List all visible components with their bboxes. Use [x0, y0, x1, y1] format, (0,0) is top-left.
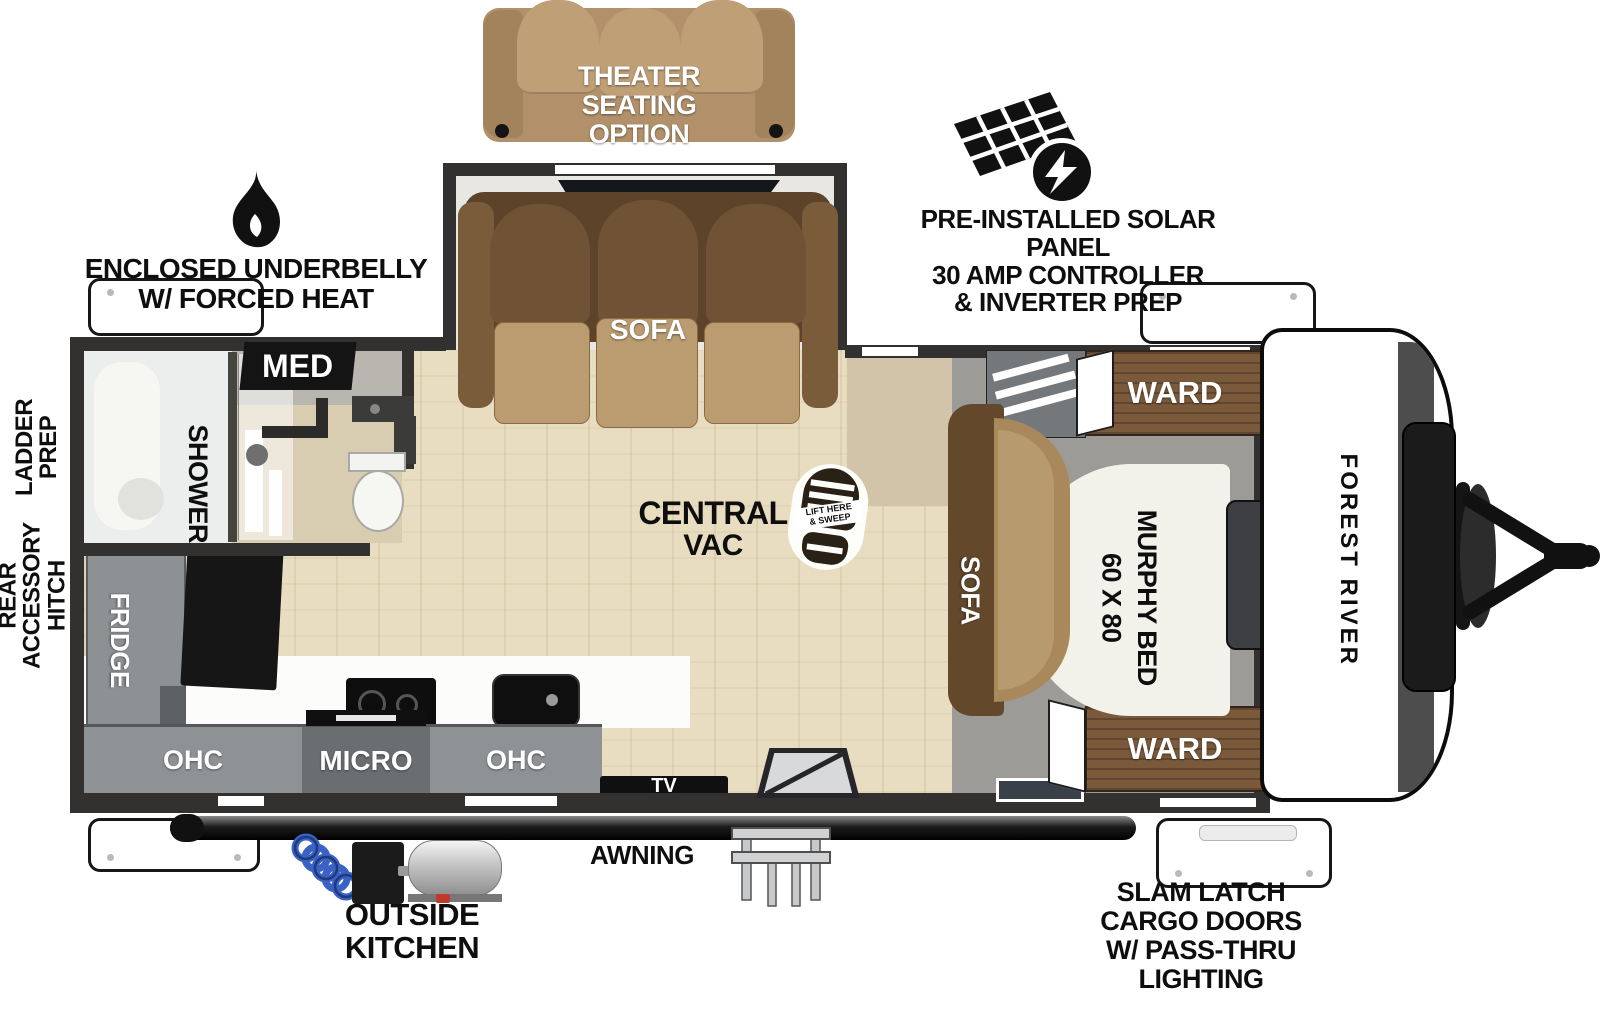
window-bottom-1 [218, 796, 264, 806]
fridge-label-wrap: FRIDGE [96, 560, 144, 720]
window-bottom-2 [465, 796, 557, 806]
bed-sofa-label-wrap: SOFA [948, 538, 992, 642]
wardrobe-bottom: WARD [1085, 706, 1265, 792]
awning-rail-endcap [170, 814, 204, 842]
murphy-size-wrap: 60 X 80 [1094, 518, 1128, 678]
rear-accessory-hitch-label: REAR ACCESSORY HITCH [0, 478, 66, 714]
boot-print-icon: LIFT HERE & SWEEP [785, 463, 870, 572]
slideout-sofa: SOFA [458, 192, 838, 432]
brand-label: FOREST RIVER [1336, 453, 1360, 666]
overhead-cabinet-right: OHC [430, 724, 602, 794]
murphy-name-wrap: MURPHY BED [1128, 492, 1164, 704]
outside-kitchen-box [352, 842, 404, 904]
outside-kitchen-label: OUTSIDE KITCHEN [322, 898, 502, 964]
ward-bottom-label: WARD [1128, 731, 1223, 767]
micro-vent-slot [336, 715, 396, 721]
wall-left-rear [70, 337, 84, 813]
entry-door [754, 748, 862, 798]
shower-seat [118, 478, 164, 520]
bed-sofa-cushion [998, 430, 1054, 690]
shower-head-icon [246, 444, 268, 466]
outside-kitchen-griddle [408, 840, 502, 896]
sofa-back-cushion [490, 204, 590, 324]
kitchen-sink [492, 674, 580, 728]
wardrobe-bottom-door [1048, 699, 1086, 792]
murphy-size-label: 60 X 80 [1097, 553, 1125, 643]
ohc-right-label: OHC [486, 745, 546, 776]
med-label: MED [262, 348, 333, 385]
slam-latch-callout: SLAM LATCH CARGO DOORS W/ PASS-THRU LIGH… [1096, 878, 1306, 994]
brand-label-wrap: FOREST RIVER [1316, 420, 1380, 700]
theater-label: THEATER SEATING OPTION [483, 62, 795, 149]
solar-panel-icon [938, 80, 1108, 210]
solar-callout: PRE-INSTALLED SOLAR PANEL 30 AMP CONTROL… [918, 206, 1218, 317]
toilet-tank [348, 452, 406, 472]
shower-label: SHOWER [183, 425, 211, 544]
micro-label: MICRO [319, 745, 412, 777]
awning-label: AWNING [572, 842, 712, 870]
central-vac-label: CENTRAL VAC [618, 496, 808, 562]
faucet-icon [546, 694, 558, 706]
med-cabinet: MED [239, 342, 356, 390]
entry-steps [728, 826, 834, 912]
fridge-label: FRIDGE [107, 592, 134, 687]
shower-label-wrap: SHOWER [176, 418, 218, 550]
shower-glass-frame [228, 352, 237, 542]
flame-icon [224, 166, 288, 258]
sofa-arm-right [802, 202, 838, 408]
rv-floorplan-diagram: FRIDGE OHC MICRO OHC TV CENTRAL VAC [0, 0, 1600, 1018]
bathroom-wall-bottom [70, 543, 370, 556]
underbelly-callout: ENCLOSED UNDERBELLY W/ FORCED HEAT [62, 254, 450, 314]
toilet-bowl [352, 470, 404, 532]
refrigerator [180, 544, 283, 691]
sofa-back-cushion [706, 204, 806, 324]
micro-vent [306, 710, 426, 726]
theater-seating-graphic: THEATER SEATING OPTION [483, 0, 795, 152]
slideout-sofa-label: SOFA [458, 314, 838, 346]
tongue-hitch [1448, 470, 1600, 642]
counter-corner [160, 686, 186, 726]
microwave-cabinet: MICRO [302, 724, 430, 794]
bed-sofa-label: SOFA [957, 556, 984, 625]
sofa-arm-left [458, 202, 494, 408]
wardrobe-top-door [1076, 349, 1114, 436]
bath-counter-edge2 [316, 398, 328, 438]
slideout-window-top [555, 165, 775, 174]
sofa-back-cushion [598, 200, 698, 326]
window-top-1 [862, 347, 918, 356]
ward-top-label: WARD [1128, 375, 1223, 411]
window-bottom-3 [1160, 798, 1256, 807]
ohc-left-label: OHC [163, 745, 223, 776]
vanity-faucet-icon [370, 404, 380, 414]
overhead-cabinet-left: OHC [84, 724, 302, 794]
murphy-name-label: MURPHY BED [1132, 510, 1160, 686]
